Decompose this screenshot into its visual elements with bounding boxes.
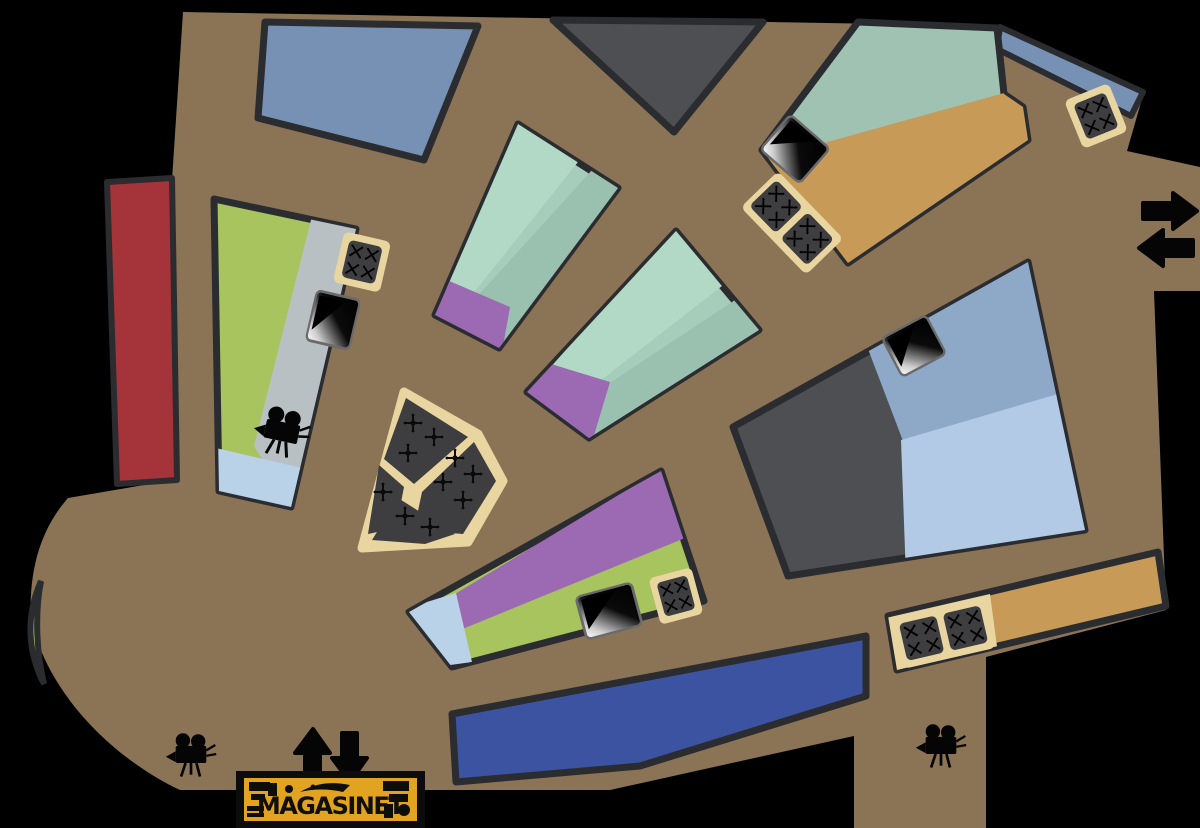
room-red: [107, 178, 177, 484]
floor-plan-page: MAGASINET: [0, 0, 1200, 828]
floor-plan-map: MAGASINET: [0, 0, 1200, 828]
logo-text: MAGASINET: [257, 792, 405, 820]
logo-banner: MAGASINET: [236, 771, 425, 828]
